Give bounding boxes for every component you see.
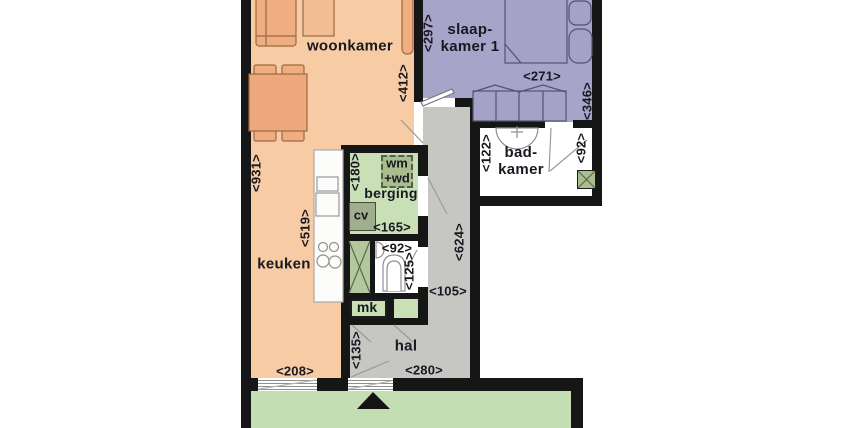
threshold-front-door	[348, 380, 393, 391]
room-label-woonkamer: woonkamer	[307, 39, 393, 56]
floor-outdoor-terrace	[251, 391, 571, 428]
mk-side-box	[394, 299, 418, 318]
room-label-badkamer-line1: bad-	[498, 145, 544, 162]
label-cv: cv	[354, 209, 368, 224]
floor-shaft	[349, 241, 370, 293]
room-label-berging: berging	[364, 186, 417, 202]
door-opening-storage	[418, 176, 428, 216]
dim-toilet-height: <125>	[403, 252, 418, 290]
room-label-badkamer-line2: kamer	[498, 162, 544, 179]
dim-bedroom-left: <297>	[422, 14, 437, 52]
wall-mk-bottom	[341, 318, 428, 325]
floor-plan: woonkamer slaap- kamer 1 bad- kamer berg…	[0, 0, 842, 428]
wall-exterior-left	[241, 0, 251, 428]
label-wd: +wd	[384, 171, 410, 186]
door-opening-bedroom	[423, 98, 455, 107]
room-label-hal: hal	[395, 339, 418, 356]
label-wm: wm	[384, 156, 410, 171]
dim-kitchen-counter: <519>	[299, 209, 314, 247]
label-washer-dryer: wm +wd	[384, 156, 410, 185]
room-label-slaapkamer1: slaap- kamer 1	[441, 22, 500, 56]
dim-hall-corridor-length: <624>	[453, 223, 468, 261]
wall-bathroom-bottom	[470, 196, 602, 206]
dim-living-left: <931>	[250, 154, 265, 192]
dim-storage-bottom: <165>	[373, 221, 411, 236]
door-opening-toilet	[418, 247, 428, 287]
wall-mk-divider	[387, 299, 394, 318]
room-label-slaapkamer1-line2: kamer 1	[441, 39, 500, 56]
dim-bathroom-left: <122>	[480, 134, 495, 172]
wall-bottom-1	[241, 378, 258, 391]
dim-kitchen-bottom: <208>	[276, 365, 314, 380]
dim-living-right-wall: <412>	[397, 64, 412, 102]
dim-storage-left: <180>	[349, 153, 364, 191]
threshold-kitchen-terrace	[258, 380, 317, 391]
dim-bedroom-wardrobe: <271>	[523, 70, 561, 85]
dim-bedroom-right: <346>	[581, 82, 596, 120]
room-label-keuken: keuken	[257, 257, 311, 274]
dim-hall-corridor-width: <105>	[429, 285, 467, 300]
label-mk: mk	[357, 300, 377, 316]
dim-hall-bottom-width: <280>	[405, 364, 443, 379]
dim-bathroom-door: <92>	[575, 133, 590, 163]
wall-terrace-right	[571, 378, 583, 428]
wall-bedroom-bathroom-left	[470, 120, 545, 128]
wall-shaft-toilet	[370, 241, 375, 293]
room-label-slaapkamer1-line1: slaap-	[441, 22, 500, 39]
room-label-badkamer: bad- kamer	[498, 145, 544, 179]
dim-hall-bottom-height: <135>	[350, 331, 365, 369]
bathroom-shaft-box	[577, 170, 596, 189]
wall-storage-top	[341, 145, 428, 153]
wall-bottom-2	[317, 378, 348, 391]
wall-bottom-3	[393, 378, 583, 391]
